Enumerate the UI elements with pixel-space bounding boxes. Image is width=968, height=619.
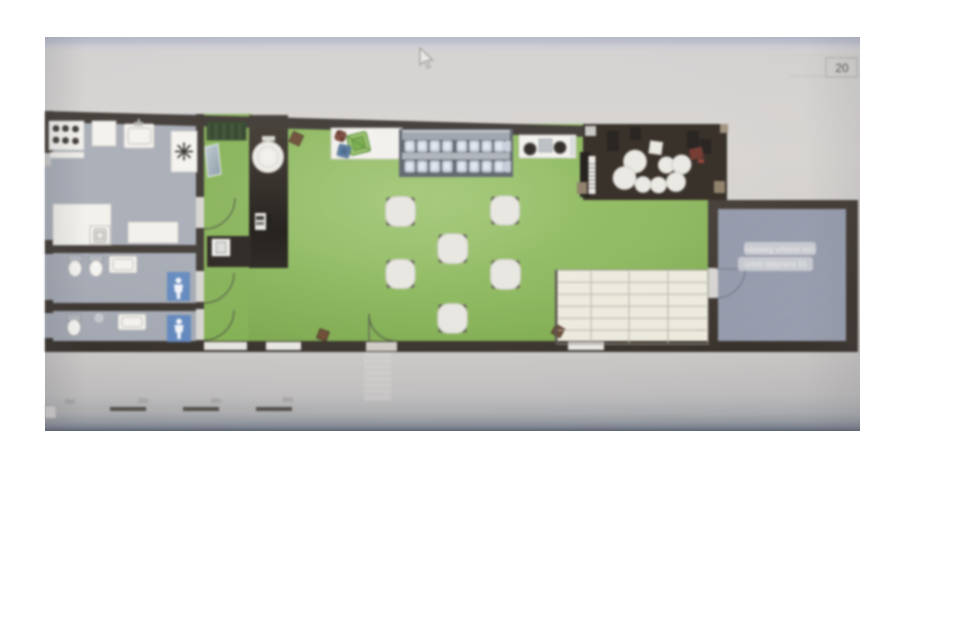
svg-text:2m: 2m <box>138 398 148 405</box>
svg-text:0m: 0m <box>65 399 75 406</box>
svg-text:ürleft täbprient 91: ürleft täbprient 91 <box>745 260 808 269</box>
svg-text:4m: 4m <box>211 398 221 405</box>
svg-text:6m: 6m <box>283 397 293 404</box>
svg-text:nässerg urbone soo: nässerg urbone soo <box>745 245 816 254</box>
svg-text:20: 20 <box>835 61 849 75</box>
